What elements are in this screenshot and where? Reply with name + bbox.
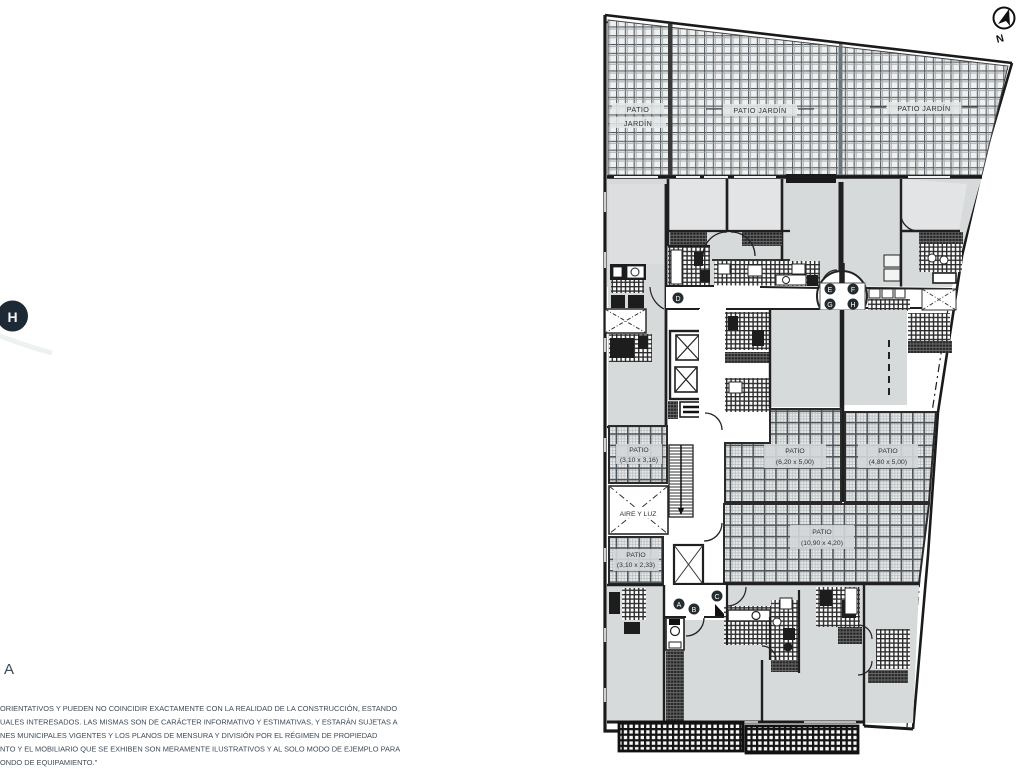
- svg-text:NTO Y EL MOBILIARIO QUE SE EXH: NTO Y EL MOBILIARIO QUE SE EXHIBEN SON M…: [0, 745, 400, 754]
- svg-text:D: D: [675, 296, 680, 303]
- svg-text:(10,90 x 4,20): (10,90 x 4,20): [801, 540, 843, 547]
- svg-text:PATIO: PATIO: [626, 552, 645, 559]
- svg-text:B: B: [692, 607, 697, 614]
- svg-text:N: N: [995, 32, 1005, 45]
- svg-text:JARDÍN: JARDÍN: [624, 119, 652, 128]
- svg-text:E: E: [828, 287, 833, 294]
- svg-text:F: F: [851, 287, 855, 294]
- svg-text:ONDO DE EQUIPAMIENTO.": ONDO DE EQUIPAMIENTO.": [0, 758, 98, 767]
- svg-text:PATIO: PATIO: [629, 447, 648, 454]
- svg-text:PATIO: PATIO: [785, 448, 804, 455]
- svg-text:G: G: [827, 302, 832, 309]
- svg-text:NES MUNICIPALES VIGENTES Y LOS: NES MUNICIPALES VIGENTES Y LOS PLANOS DE…: [0, 731, 377, 740]
- svg-text:PATIO JARDÍN: PATIO JARDÍN: [733, 106, 786, 115]
- svg-text:(3,10 x 2,33): (3,10 x 2,33): [617, 562, 655, 569]
- svg-text:ORIENTATIVOS Y PUEDEN NO COINC: ORIENTATIVOS Y PUEDEN NO COINCIDIR EXACT…: [0, 704, 397, 713]
- svg-text:PATIO JARDÍN: PATIO JARDÍN: [897, 104, 950, 113]
- svg-text:(4,80 x 5,00): (4,80 x 5,00): [869, 459, 907, 466]
- svg-text:PATIO: PATIO: [878, 448, 897, 455]
- svg-text:A: A: [677, 602, 682, 609]
- svg-text:AIRE Y LUZ: AIRE Y LUZ: [620, 511, 657, 518]
- svg-text:UALES INTERESADOS. LAS MISMAS: UALES INTERESADOS. LAS MISMAS SON DE CAR…: [0, 718, 398, 727]
- svg-text:H: H: [850, 302, 855, 309]
- svg-text:(6,20 x 5,00): (6,20 x 5,00): [776, 459, 814, 466]
- svg-text:(3,10 x 3,16): (3,10 x 3,16): [620, 457, 658, 464]
- svg-text:H: H: [7, 309, 17, 325]
- svg-text:PATIO: PATIO: [627, 105, 650, 114]
- svg-text:A: A: [4, 661, 14, 678]
- svg-text:C: C: [714, 594, 719, 601]
- svg-text:PATIO: PATIO: [812, 529, 831, 536]
